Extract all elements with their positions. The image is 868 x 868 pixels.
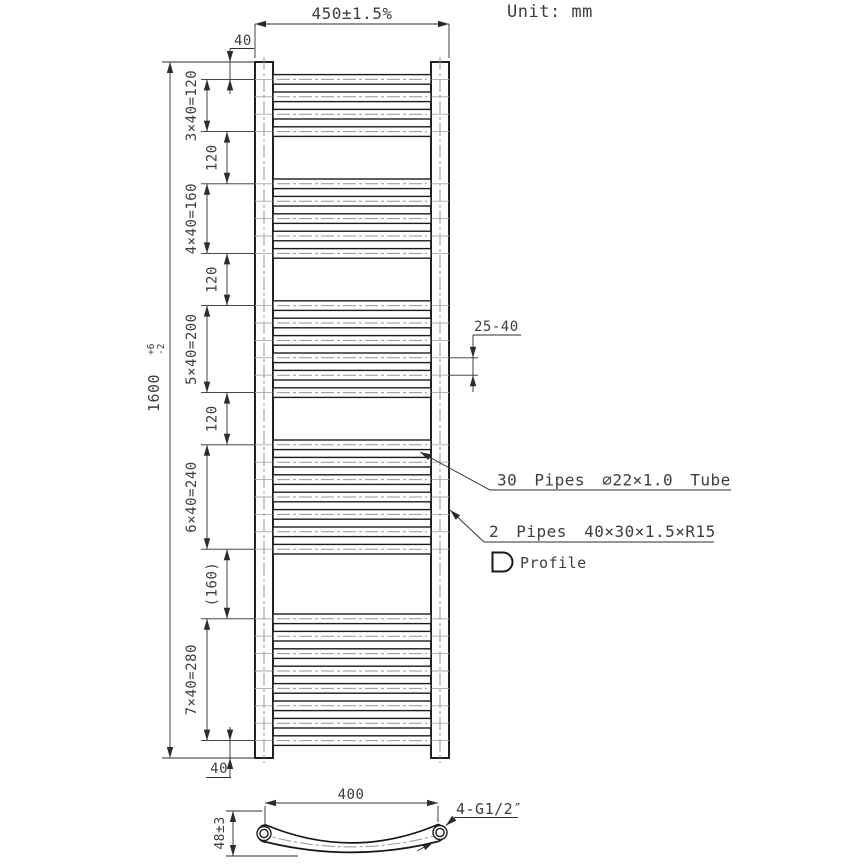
profile-label: Profile [520, 554, 587, 572]
depth-dimension-label: 48±3 [213, 816, 228, 849]
connections-label: 4-G1/2″ [456, 800, 523, 818]
dimension-label: 120 [205, 144, 221, 171]
bottom-offset-label: 40 [210, 761, 228, 777]
dimension-arrow [204, 121, 210, 132]
dimension-arrow [224, 295, 230, 306]
dimension-arrow [224, 434, 230, 445]
pipe-spacing-label: 25-40 [474, 319, 519, 335]
tube-width-label: 40 [234, 33, 252, 49]
dimension-label: (160) [205, 562, 221, 607]
height-label: 1600 [145, 374, 163, 412]
annotations: 30 Pipes ∅22×1.0 Tube 2 Pipes 40×30×1.5×… [420, 452, 731, 572]
height-label-group: 1600 +6 -2 [145, 343, 167, 412]
right-connection-inner [436, 828, 444, 836]
dimension-label: 120 [205, 405, 221, 432]
centers-dimension-label: 400 [338, 787, 365, 803]
dimension-label: 4×40=160 [184, 183, 200, 254]
width-dimension: 450±1.5% [255, 4, 449, 58]
dimension-label: 6×40=240 [184, 461, 200, 532]
dimension-label: 7×40=280 [184, 644, 200, 715]
dimension-arrow [224, 132, 230, 143]
dimension-arrow [204, 619, 210, 630]
dimension-arrow [204, 79, 210, 90]
pipe-spacing-dimension: 25-40 [450, 319, 521, 392]
bottom-offset-dimension: 40 [206, 727, 231, 778]
drawing-canvas: 3×40=1201204×40=1601205×40=2001206×40=24… [0, 0, 868, 868]
dimension-arrow [204, 538, 210, 549]
height-dimension: 1600 +6 -2 [145, 62, 170, 758]
dimension-arrow [204, 445, 210, 456]
total-pipes-note: 30 Pipes ∅22×1.0 Tube [497, 471, 731, 490]
dimension-arrow [224, 253, 230, 264]
radiator-technical-drawing: 3×40=1201204×40=1601205×40=2001206×40=24… [0, 0, 868, 868]
tube-width-dimension: 40 [230, 33, 254, 94]
dimension-label: 120 [205, 266, 221, 293]
dimension-label: 3×40=120 [184, 70, 200, 141]
side-tubes-note: 2 Pipes 40×30×1.5×R15 [489, 522, 716, 541]
dimension-arrow [204, 382, 210, 393]
left-connection-inner [260, 829, 268, 837]
width-dimension-label: 450±1.5% [311, 4, 392, 23]
dimension-arrow [204, 730, 210, 741]
dimension-arrow [224, 173, 230, 184]
dimension-arrow [224, 608, 230, 619]
curved-tube-body [258, 825, 445, 853]
dimension-arrow [224, 549, 230, 560]
generated-geometry: 3×40=1201204×40=1601205×40=2001206×40=24… [162, 21, 476, 856]
profile-icon [493, 553, 513, 572]
dimension-arrow [204, 184, 210, 195]
dimension-label: 5×40=200 [184, 313, 200, 384]
dimension-arrow [204, 306, 210, 317]
dimension-arrow [224, 393, 230, 404]
dimension-arrow [204, 242, 210, 253]
unit-label: Unit: mm [507, 2, 593, 22]
height-tol-minus: -2 [156, 344, 167, 355]
bottom-view: 400 48±3 4-G1/2″ [213, 787, 523, 856]
depth-label-group: 48±3 [213, 816, 228, 849]
